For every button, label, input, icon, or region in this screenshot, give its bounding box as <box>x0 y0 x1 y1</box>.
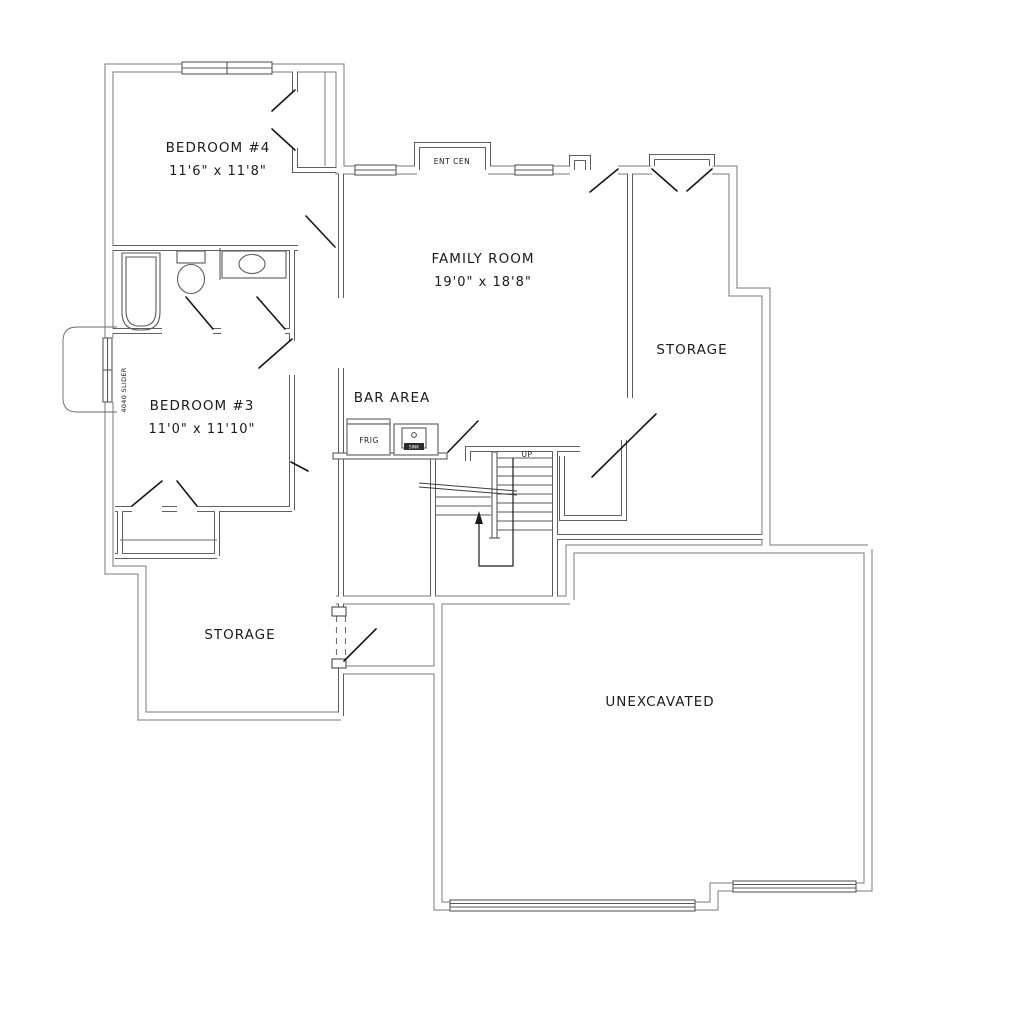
windows <box>63 62 553 412</box>
bedroom3-closet-door-leaf-1 <box>132 481 162 506</box>
family-room-rear-door <box>590 169 618 192</box>
storage-double-door-leaf-2 <box>687 169 712 191</box>
room-label-bedroom3: BEDROOM #3 <box>150 398 255 414</box>
bedroom4-window <box>182 62 272 74</box>
bar-back-shelf <box>347 419 390 424</box>
room-dims-bedroom4: 11'6" x 11'8" <box>169 164 267 179</box>
stairs-up-label: UP <box>521 450 532 459</box>
bar-sink-label: SINK <box>409 445 421 451</box>
ent-cen-label: ENT CEN <box>434 157 470 166</box>
sill-hatches <box>450 881 856 911</box>
room-dims-bedroom3: 11'0" x 11'10" <box>149 422 256 437</box>
room-label-storage-lower: STORAGE <box>204 627 275 643</box>
bedroom4-closet-door-leaf-1 <box>272 90 295 111</box>
stair-up-arrow-icon <box>475 511 483 524</box>
vanity-sink <box>220 248 286 280</box>
room-label-bar-area: BAR AREA <box>354 390 431 406</box>
room-dims-family-room: 19'0" x 18'8" <box>434 275 532 290</box>
bar-area-fixtures <box>333 419 447 459</box>
exterior-walls <box>109 68 868 906</box>
bathtub <box>122 253 160 330</box>
room-label-unexcavated: UNEXCAVATED <box>605 694 714 710</box>
sill-hatch-right <box>733 881 856 892</box>
bedroom3-closet-door-leaf-2 <box>177 481 197 506</box>
stair-treads-lower-run <box>435 497 491 515</box>
slider-window-label: 4040 SLIDER <box>120 367 128 412</box>
cased-opening <box>332 607 346 668</box>
toilet <box>177 251 205 294</box>
family-room-window-west <box>355 165 396 175</box>
bathroom-door-2 <box>257 297 285 329</box>
bedroom3-entry-door <box>259 339 292 368</box>
fridge-label: FRIG <box>359 436 379 445</box>
slider-window <box>103 338 112 402</box>
bathroom-door-1 <box>186 297 213 329</box>
stairs <box>419 452 553 566</box>
room-label-bedroom4: BEDROOM #4 <box>166 140 271 156</box>
floor-plan-page: BEDROOM #4 11'6" x 11'8" FAMILY ROOM 19'… <box>0 0 1025 1013</box>
bedroom4-entry-door <box>306 216 335 247</box>
bedroom4-closet-door-leaf-2 <box>272 129 295 150</box>
storage-double-door-leaf-1 <box>652 169 677 191</box>
passage-door <box>344 629 376 661</box>
family-room-window-center <box>515 165 553 175</box>
room-label-storage-right: STORAGE <box>656 342 727 358</box>
exterior-wall-core <box>109 68 868 906</box>
stair-railing <box>492 452 497 538</box>
room-label-family-room: FAMILY ROOM <box>432 251 535 267</box>
sill-hatch-left <box>450 900 695 911</box>
floor-plan-canvas: BEDROOM #4 11'6" x 11'8" FAMILY ROOM 19'… <box>0 0 1025 1013</box>
